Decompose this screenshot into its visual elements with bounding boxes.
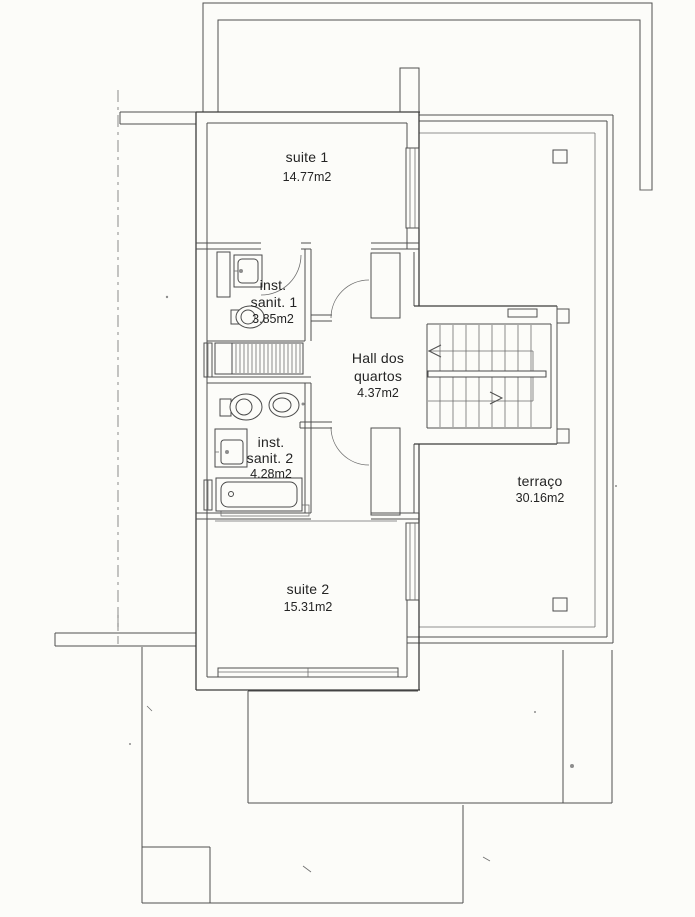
floor-plan-drawing: suite 1 14.77m2 inst. sanit. 1 3.85m2 Ha… xyxy=(0,0,695,917)
stair-wall-right xyxy=(551,306,557,444)
label-hall-area: 4.37m2 xyxy=(357,386,399,400)
bidet-1 xyxy=(220,394,262,420)
toilet-2 xyxy=(269,393,305,417)
window-suite2-south xyxy=(218,668,398,677)
lower-terrace-edge-left xyxy=(55,633,196,646)
door-arc-suite1 xyxy=(331,280,369,318)
label-suite1-name: suite 1 xyxy=(286,149,329,165)
label-sanit1-line2: sanit. 1 xyxy=(251,294,298,310)
lower-floor-outline xyxy=(142,647,612,903)
overhang-outer-line xyxy=(203,3,652,190)
window-suite1-east xyxy=(406,148,419,228)
label-hall-line2: quartos xyxy=(354,368,402,384)
label-terraco-area: 30.16m2 xyxy=(516,491,565,505)
room-labels: suite 1 14.77m2 inst. sanit. 1 3.85m2 Ha… xyxy=(247,149,565,614)
window-suite2-east xyxy=(406,523,419,600)
left-stub-wall xyxy=(120,112,196,124)
wall-sanit-east xyxy=(305,249,311,513)
lower-ground-outline xyxy=(142,647,463,903)
window-sanit1-west xyxy=(204,343,212,377)
scan-mark-1 xyxy=(483,857,490,861)
terrace-column-bottom xyxy=(553,598,567,611)
site-boundary-left xyxy=(55,90,196,647)
terrace xyxy=(407,115,613,643)
label-suite2-area: 15.31m2 xyxy=(284,600,333,614)
wall-suite1-south xyxy=(196,243,419,249)
label-sanit2-line2: sanit. 2 xyxy=(247,450,294,466)
wall-hall-top-left xyxy=(311,315,332,321)
roof-overhang-outline xyxy=(203,3,652,190)
stairwell xyxy=(414,306,569,444)
scan-mark-2 xyxy=(303,866,311,872)
door-arc-suite2 xyxy=(331,427,369,465)
wall-pier-upper xyxy=(371,253,400,318)
bathtub-1 xyxy=(216,478,302,511)
terrace-railing-outer xyxy=(407,115,613,643)
label-sanit2-line1: inst. xyxy=(258,434,285,450)
terrace-floor-inner-edge xyxy=(419,133,595,627)
washbasin-1 xyxy=(234,255,262,287)
stair-stub-bottom xyxy=(557,429,569,443)
scan-mark-3 xyxy=(147,706,152,711)
stair-stub-top xyxy=(557,309,569,323)
niche-sanit1 xyxy=(217,252,230,297)
label-sanit1-line1: inst. xyxy=(260,277,287,293)
wall-pier-lower xyxy=(371,428,400,515)
window-sanit2-west xyxy=(204,480,212,510)
label-terraco-name: terraço xyxy=(518,473,563,489)
floor-plan-scan: suite 1 14.77m2 inst. sanit. 1 3.85m2 Ha… xyxy=(0,0,695,917)
stair-handrail xyxy=(428,371,546,377)
chimney-stub xyxy=(400,68,419,112)
label-suite1-area: 14.77m2 xyxy=(283,170,332,184)
terrace-railing-mid xyxy=(407,121,607,637)
label-suite2-name: suite 2 xyxy=(287,581,330,597)
lower-floor-rect xyxy=(248,650,612,803)
shower-1 xyxy=(215,343,303,374)
label-hall-line1: Hall dos xyxy=(352,350,404,366)
label-sanit2-area: 4.28m2 xyxy=(250,467,292,481)
terrace-column-top xyxy=(553,150,567,163)
washbasin-2 xyxy=(215,429,247,467)
label-sanit1-area: 3.85m2 xyxy=(252,312,294,326)
stair-skylight xyxy=(508,309,537,317)
wall-east-corridor xyxy=(414,252,419,513)
